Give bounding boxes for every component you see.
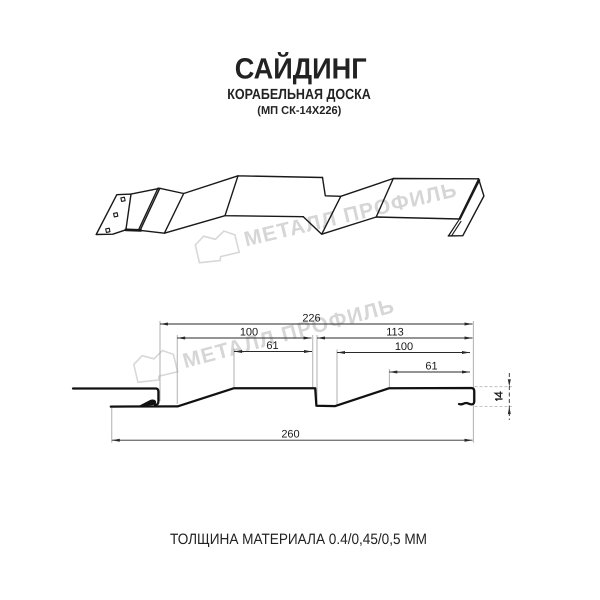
svg-text:100: 100 — [240, 327, 258, 339]
svg-text:(МП СК-14Х226): (МП СК-14Х226) — [257, 105, 341, 117]
svg-text:100: 100 — [395, 341, 413, 353]
svg-text:ТОЛЩИНА МАТЕРИАЛА 0.4/0,45/0,5: ТОЛЩИНА МАТЕРИАЛА 0.4/0,45/0,5 ММ — [170, 531, 427, 548]
svg-text:61: 61 — [425, 360, 437, 372]
svg-text:260: 260 — [281, 429, 299, 441]
svg-text:61: 61 — [266, 340, 278, 352]
svg-text:113: 113 — [386, 327, 404, 339]
svg-text:226: 226 — [302, 313, 320, 325]
svg-text:САЙДИНГ: САЙДИНГ — [235, 52, 367, 86]
svg-text:КОРАБЕЛЬНАЯ ДОСКА: КОРАБЕЛЬНАЯ ДОСКА — [227, 87, 371, 103]
